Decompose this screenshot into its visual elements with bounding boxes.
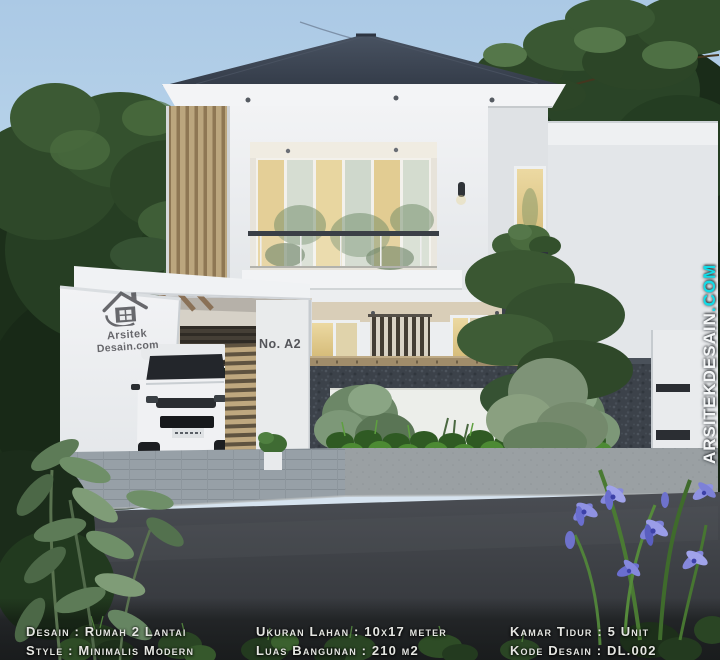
wood-gate (225, 343, 259, 466)
info-design: Desain : Rumah 2 Lantai (26, 622, 194, 641)
balcony (248, 142, 439, 272)
info-building-area: Luas Bangunan : 210 m2 (256, 641, 447, 660)
info-column-code: Kamar Tidur : 5 Unit Kode Desain : DL.00… (510, 622, 657, 660)
side-watermark-name: ARSITEKDESAIN (700, 312, 719, 464)
roof-fascia (162, 84, 566, 108)
ground-window-left (308, 320, 360, 362)
wood-slat-screen (166, 106, 230, 292)
glass-railing (248, 231, 439, 268)
house-number: No. A2 (250, 337, 310, 351)
architectural-render: Arsitek Desain.com No. A2 ARSITEKDESAIN.… (0, 0, 720, 660)
ground-slat-screen (368, 314, 432, 362)
info-design-code: Kode Desain : DL.002 (510, 641, 657, 660)
info-column-design: Desain : Rumah 2 Lantai Style : Minimali… (26, 622, 194, 660)
info-land-size: Ukuran Lahan : 10x17 meter (256, 622, 447, 641)
info-column-size: Ukuran Lahan : 10x17 meter Luas Bangunan… (256, 622, 447, 660)
logo-house-icon (100, 286, 151, 327)
info-style: Style : Minimalis Modern (26, 641, 194, 660)
side-watermark: ARSITEKDESAIN.COM (700, 142, 720, 464)
logo-watermark: Arsitek Desain.com (78, 285, 174, 356)
info-bedrooms: Kamar Tidur : 5 Unit (510, 622, 657, 641)
side-watermark-tld: .COM (700, 264, 719, 312)
